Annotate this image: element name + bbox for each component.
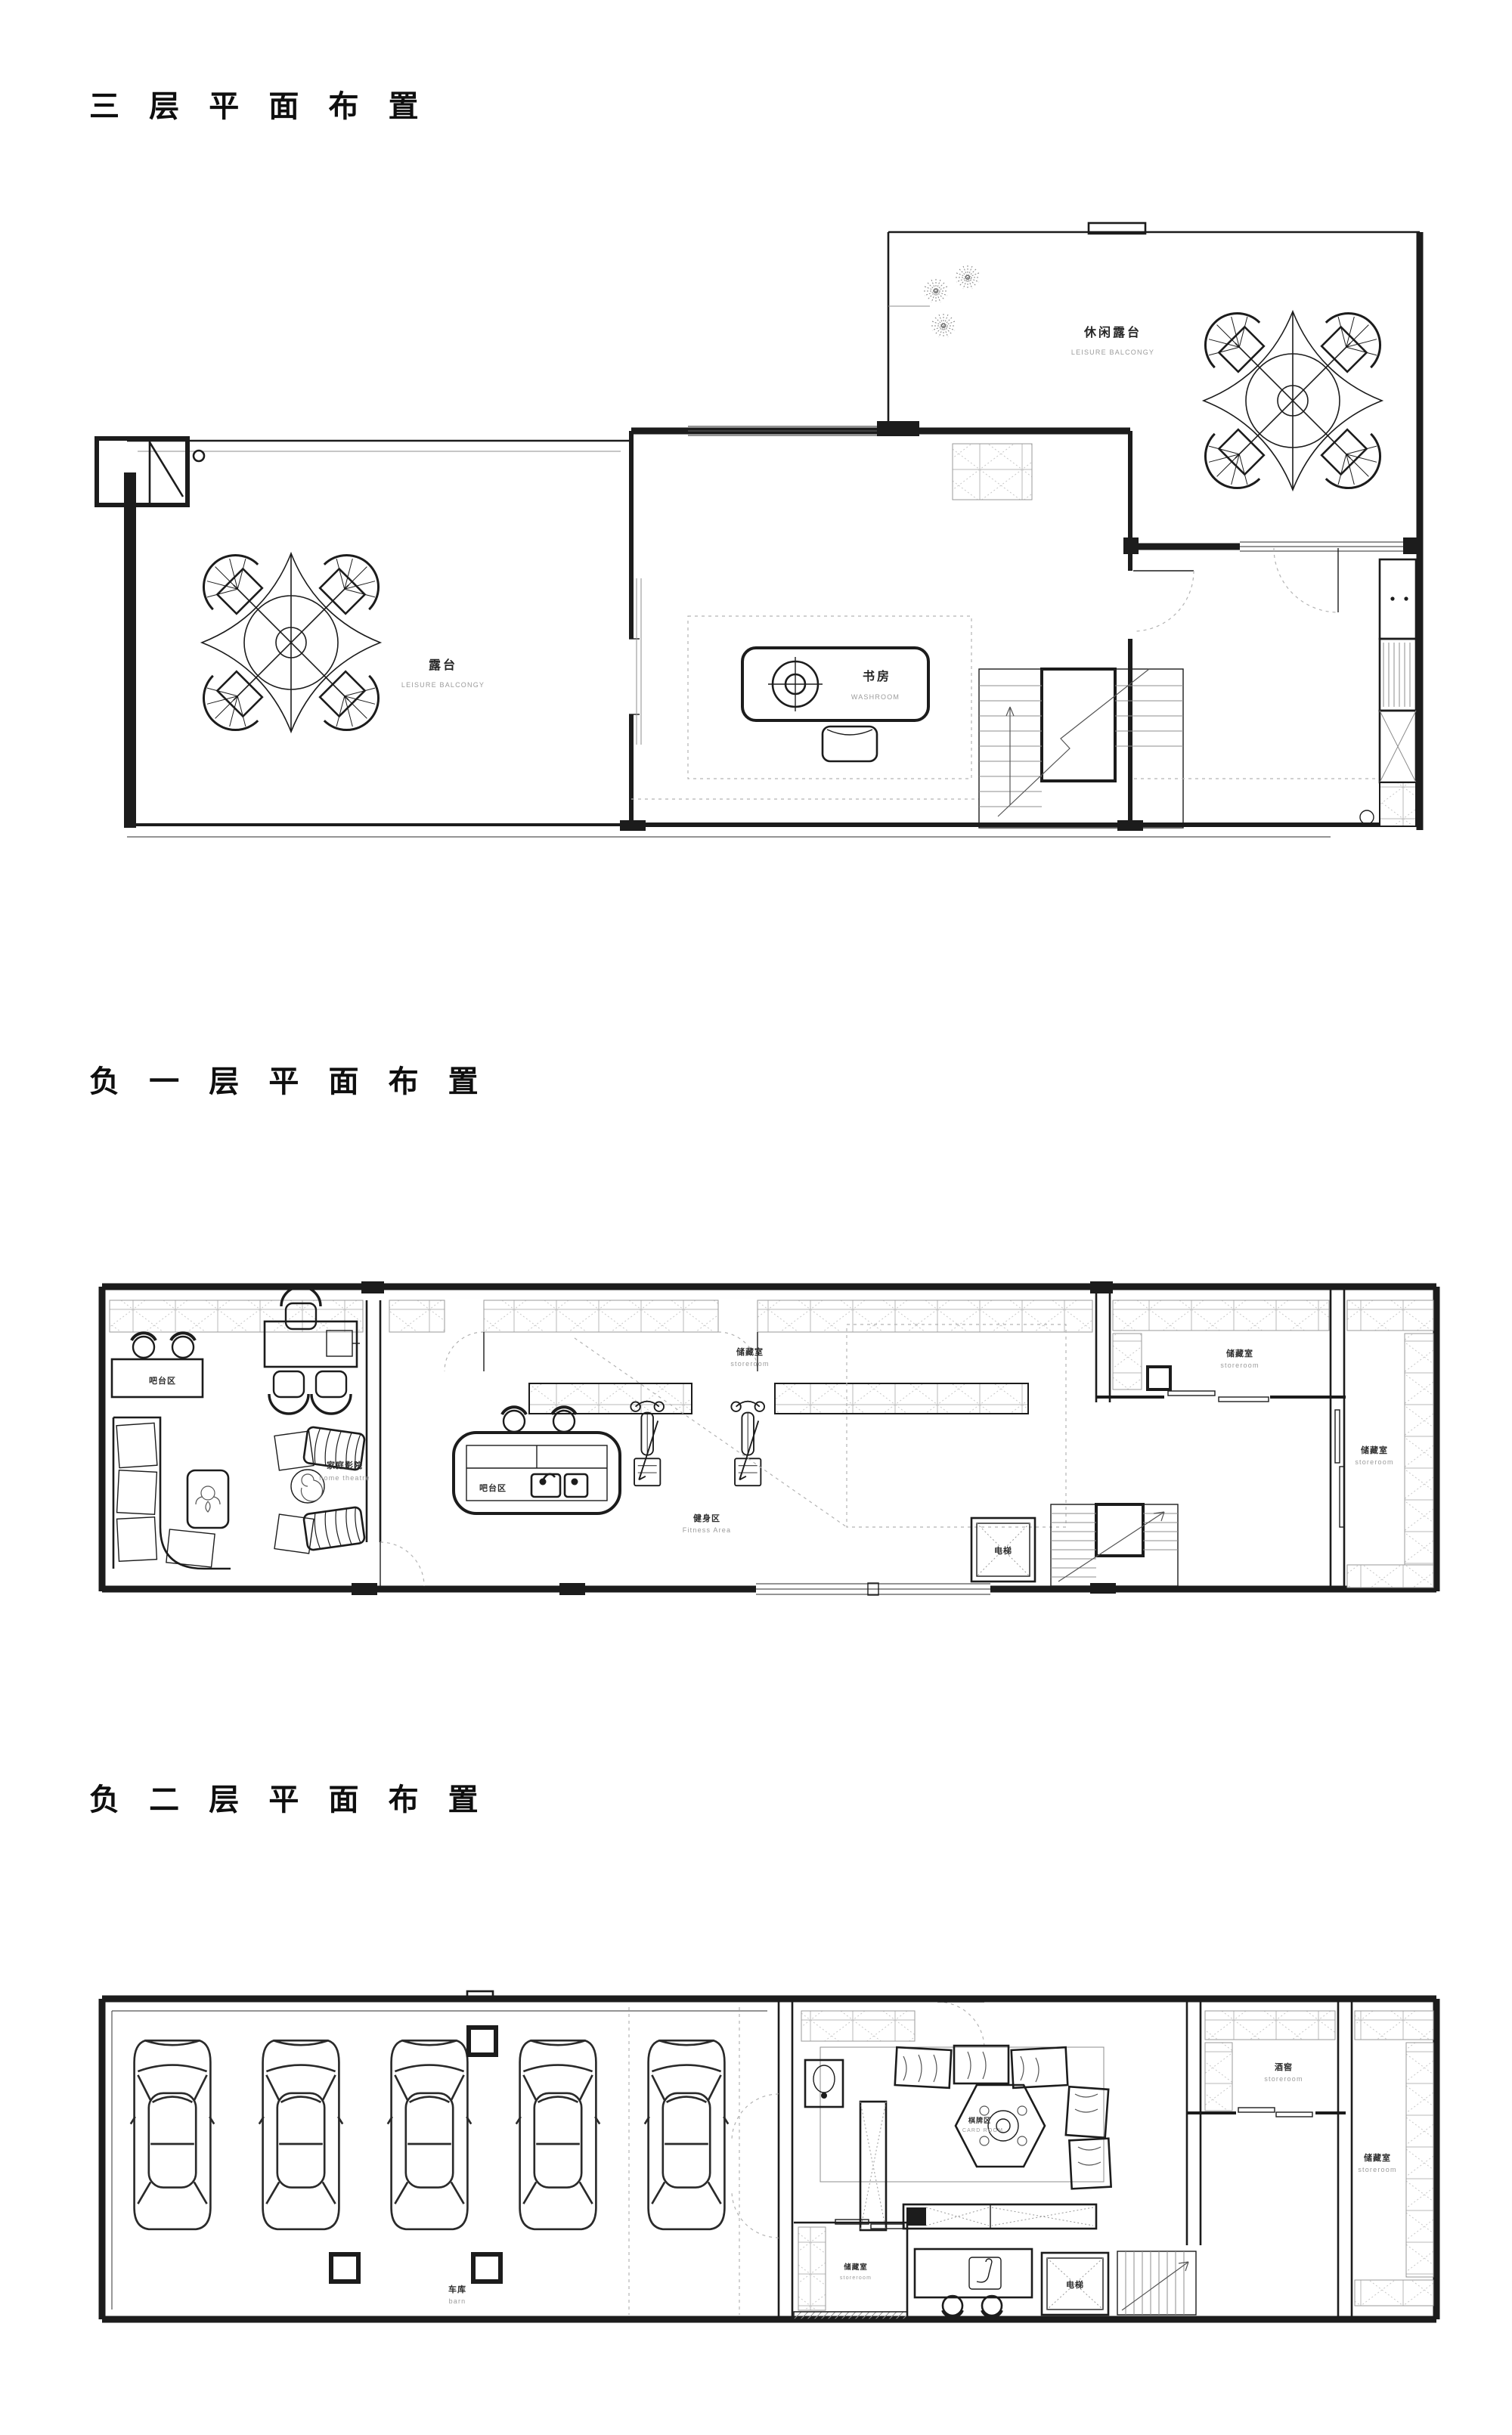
void-projection: [847, 1324, 1066, 1527]
floorplan-sheet: 三 层 平 面 布 置 负 一 层 平 面 布 置 负 二 层 平 面 布 置 …: [0, 0, 1512, 2435]
storeroom-right-label-cn: 储藏室: [1364, 2152, 1391, 2163]
title-basement-1: 负 一 层 平 面 布 置: [89, 1057, 489, 1101]
low-cabinet: [775, 1383, 1028, 1414]
car: [516, 2040, 600, 2229]
fireplace: [805, 2060, 843, 2107]
card-room-label-en: CARD ROOM: [962, 2128, 1003, 2133]
plant-icon: [956, 265, 980, 290]
fitness-label-cn: 健身区: [693, 1513, 720, 1523]
plant-icon: [931, 314, 956, 338]
storeroom-gym-label-cn: 储藏室: [736, 1346, 764, 1357]
garage: 车库 barn: [131, 1999, 792, 2319]
room-label-garage: 车库 barn: [448, 2284, 466, 2305]
column: [469, 2028, 496, 2055]
wine-cellar-room: 酒窖 storeroom: [1187, 1999, 1346, 2245]
fitness-label-en: Fitness Area: [683, 1526, 731, 1534]
exercise-bike: [731, 1402, 764, 1486]
staircase: [1117, 2251, 1196, 2315]
study-label-cn: 书房: [863, 669, 891, 683]
umbrella-table: [191, 542, 392, 743]
column: [473, 2254, 500, 2282]
title-basement-2: 负 二 层 平 面 布 置: [89, 1775, 489, 1819]
wine-cellar-label-cn: 酒窖: [1275, 2062, 1293, 2072]
room-label-home-theatre: 家庭影院 home theatre: [319, 1460, 370, 1482]
floorplan-b2: 车库 barn: [91, 1988, 1444, 2332]
home-theatre-label-cn: 家庭影院: [327, 1460, 363, 1470]
card-room-label-cn: 棋牌区: [968, 2116, 991, 2124]
umbrella-table: [1192, 300, 1393, 501]
lounge-room: 吧台区: [110, 1287, 424, 1589]
card-table: 棋牌区 CARD ROOM: [956, 2085, 1045, 2167]
storeroom-right-label-en: storeroom: [1358, 2166, 1396, 2173]
garage-label-cn: 车库: [448, 2284, 466, 2294]
stool: [171, 1333, 195, 1358]
column: [331, 2254, 358, 2282]
title-floor-3: 三 层 平 面 布 置: [89, 82, 429, 125]
storeroom-mid-label-en: storeroom: [1220, 1362, 1259, 1369]
wine-cellar-label-en: storeroom: [1264, 2075, 1303, 2083]
storeroom-left-room: 储藏室 storeroom: [794, 2220, 907, 2319]
storeroom-mid-label-cn: 储藏室: [1226, 1348, 1253, 1358]
storeroom-right-room: 储藏室 storeroom: [1338, 1999, 1433, 2319]
terrace-room: [97, 438, 1331, 837]
room-label-storeroom-right: 储藏室 storeroom: [1355, 1445, 1393, 1466]
plant-icon: [924, 279, 948, 303]
home-theatre-label-en: home theatre: [319, 1474, 370, 1482]
study-room: [620, 421, 1194, 831]
elevator-label: 电梯: [994, 1545, 1012, 1556]
staircase: [1051, 1504, 1178, 1586]
leisure-label-en: LEISURE BALCONGY: [1071, 349, 1154, 356]
tea-table: [915, 2249, 1032, 2317]
room-label-storeroom-right: 储藏室 storeroom: [1358, 2152, 1396, 2173]
terrace-label-cn: 露台: [429, 658, 457, 672]
closet: [110, 1300, 363, 1332]
desk-chair: [823, 726, 877, 761]
home-theatre-seats: [274, 1427, 365, 1554]
storeroom-left-label-en: storeroom: [840, 2275, 872, 2281]
floorplan-3f: 露台 LEISURE BALCONGY: [91, 215, 1444, 881]
room-label-storeroom-left: 储藏室 storeroom: [840, 2263, 872, 2281]
car: [388, 2040, 471, 2229]
room-label-fitness: 健身区 Fitness Area: [683, 1513, 731, 1534]
room-label-terrace: 露台 LEISURE BALCONGY: [401, 658, 485, 689]
storeroom-right-label-en: storeroom: [1355, 1458, 1393, 1466]
bar-counter-label: 吧台区: [149, 1375, 176, 1386]
room-label-leisure-balcony: 休闲露台 LEISURE BALCONGY: [1071, 325, 1154, 356]
storeroom-left-label-cn: 储藏室: [844, 2263, 868, 2272]
room-label-storeroom-gym: 储藏室 storeroom: [730, 1346, 769, 1368]
room-label-card-room: 棋牌区 CARD ROOM: [962, 2116, 1003, 2133]
tv-console: [903, 2204, 1096, 2229]
room-label-storeroom-mid: 储藏室 storeroom: [1220, 1348, 1259, 1369]
staircase: [979, 669, 1183, 828]
car: [645, 2040, 728, 2229]
stool: [132, 1333, 156, 1358]
study-label-en: WASHROOM: [851, 693, 900, 701]
car: [131, 2040, 214, 2229]
floorplan-b1: 吧台区: [91, 1278, 1444, 1603]
bar-island: 吧台区: [454, 1407, 620, 1513]
ramp-hatch: [794, 2312, 907, 2319]
leisure-label-cn: 休闲露台: [1083, 325, 1142, 339]
garage-label-en: barn: [449, 2297, 466, 2305]
sofa: [113, 1417, 231, 1569]
storeroom-gym-label-en: storeroom: [730, 1360, 769, 1368]
bar-island-label: 吧台区: [479, 1482, 507, 1493]
study-desk: 书房 WASHROOM: [742, 648, 928, 761]
storeroom-right-label-cn: 储藏室: [1361, 1445, 1388, 1455]
gym-room: 储藏室 storeroom 吧台区: [389, 1300, 1092, 1534]
terrace-label-en: LEISURE BALCONGY: [401, 681, 485, 689]
car: [259, 2040, 342, 2229]
elevator-label: 电梯: [1066, 2279, 1084, 2290]
elevator: 电梯: [1042, 2253, 1108, 2315]
room-label-wine-cellar: 酒窖 storeroom: [1264, 2062, 1303, 2083]
side-table: [187, 1470, 228, 1528]
cabinet-room: [1130, 559, 1420, 826]
low-cabinet: [529, 1383, 692, 1414]
